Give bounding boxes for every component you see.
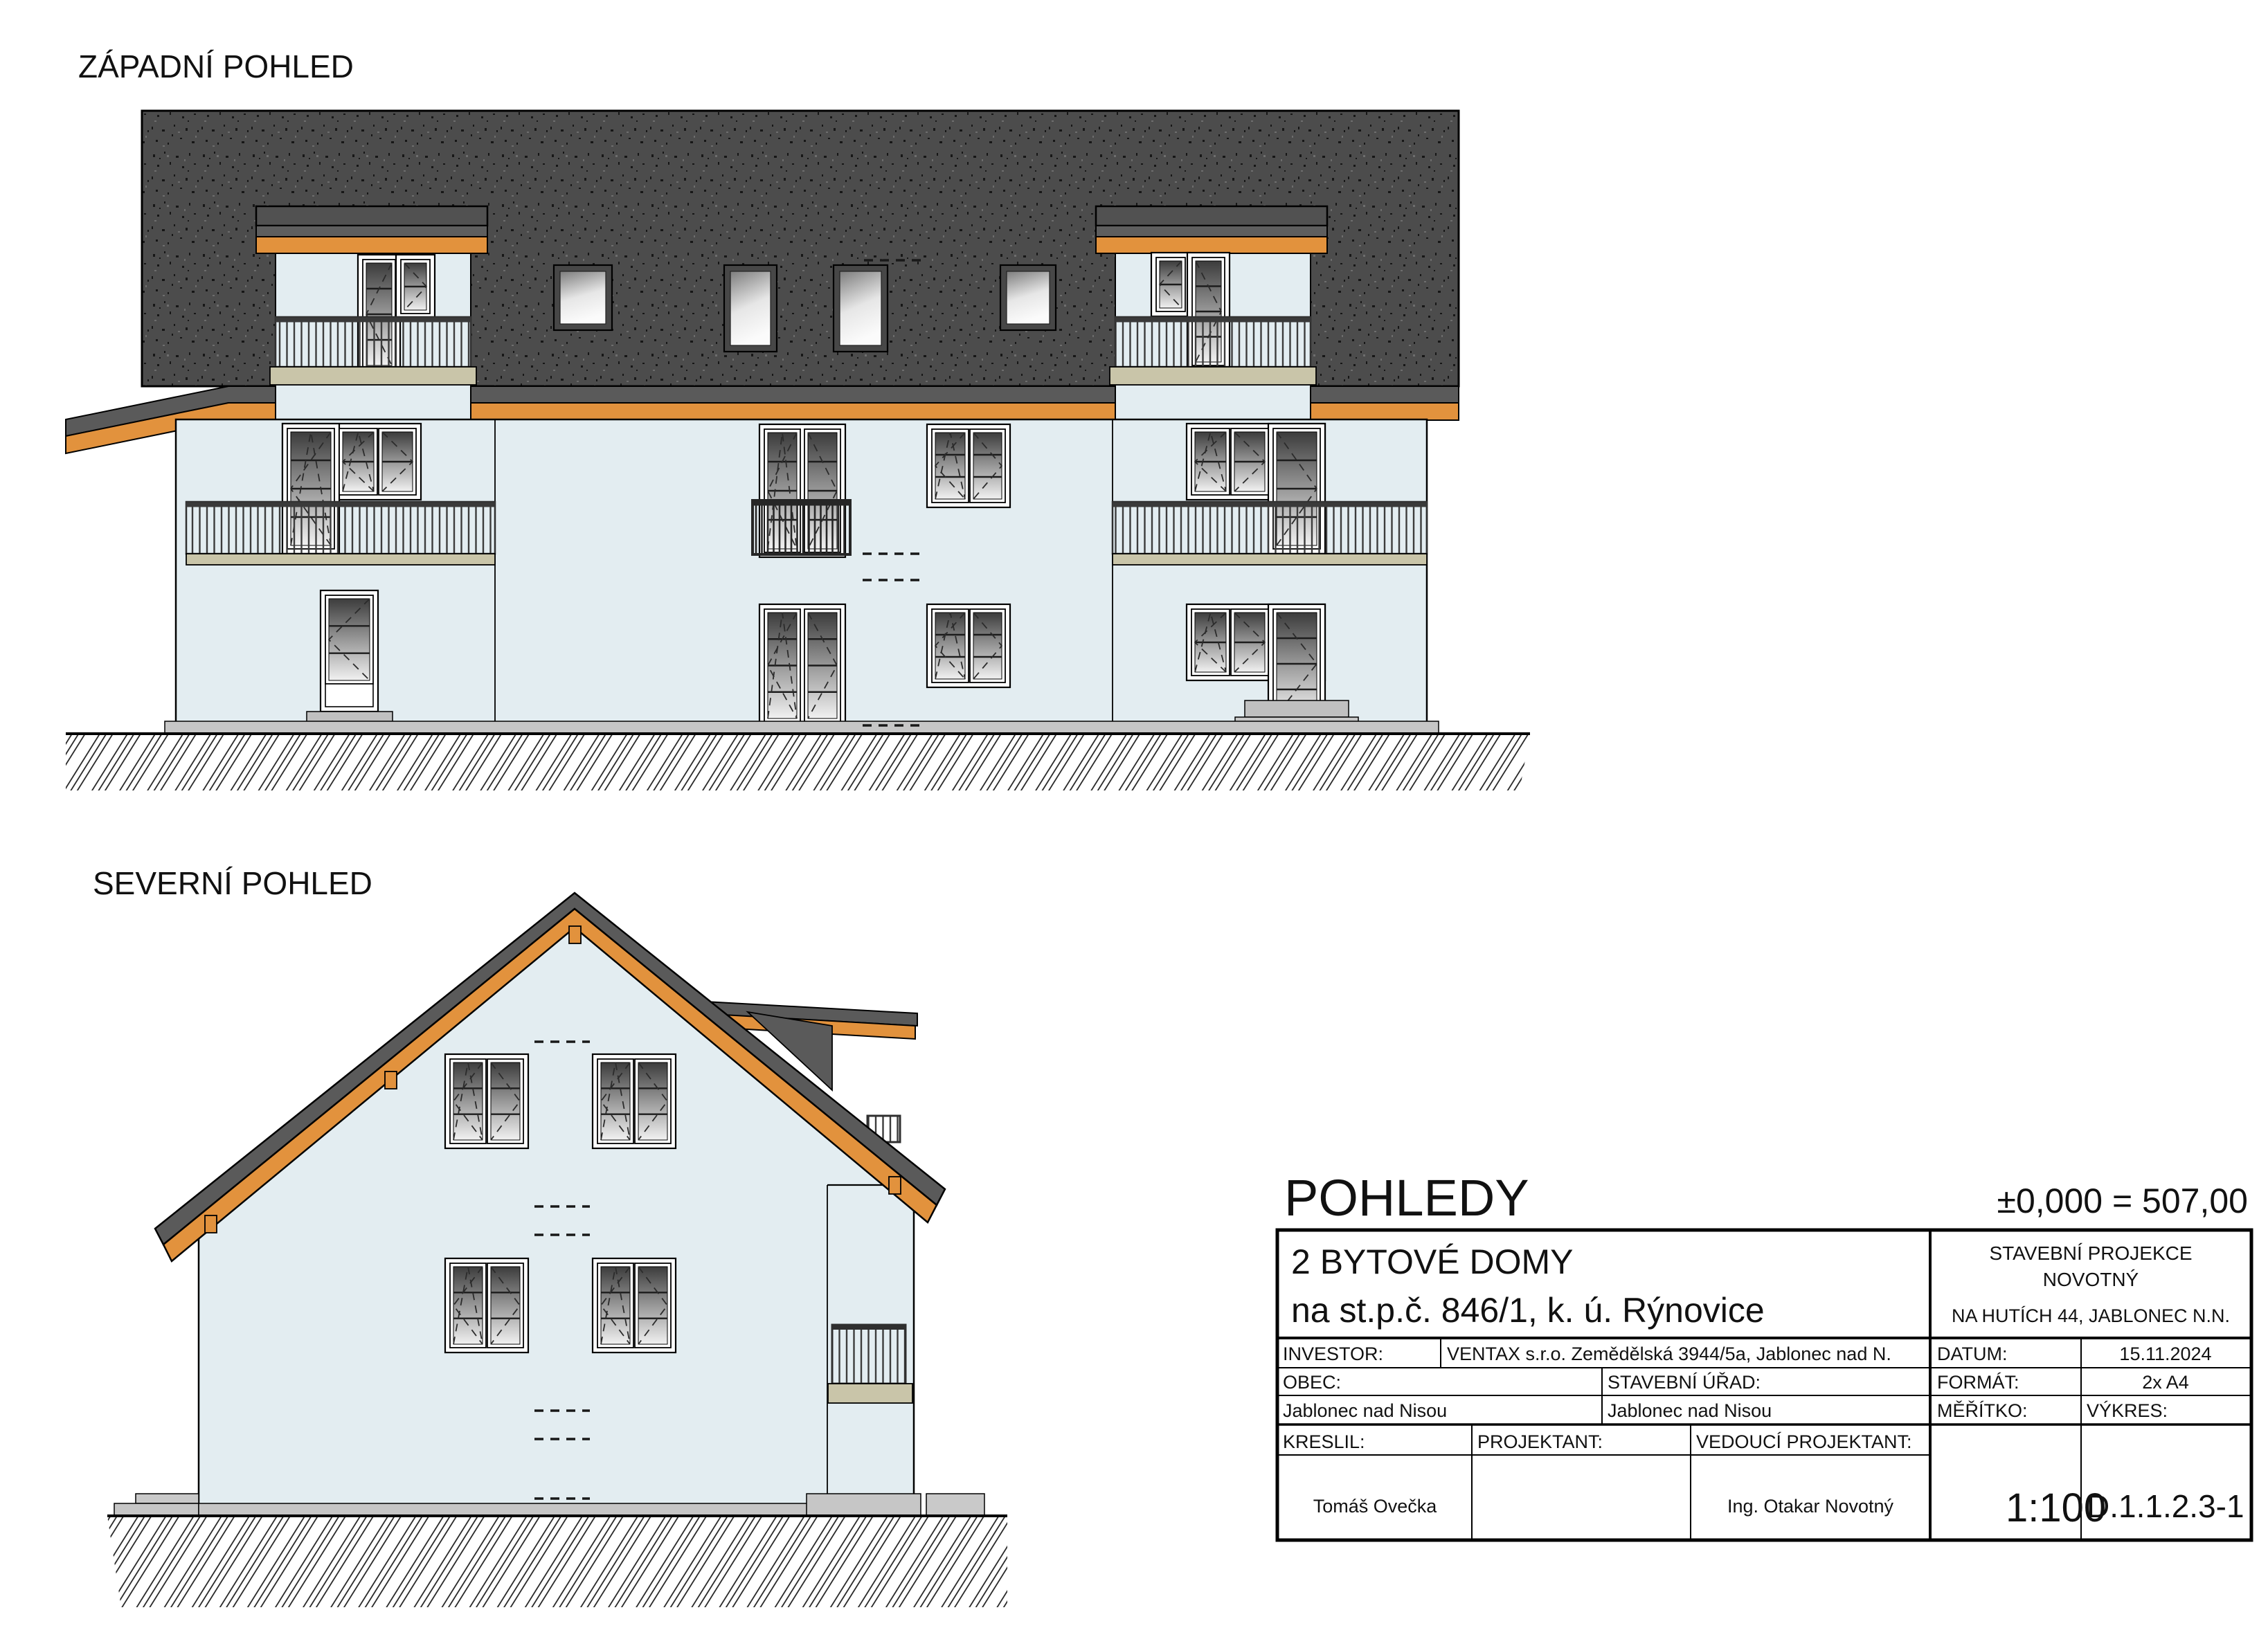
project-title-line2: na st.p.č. 846/1, k. ú. Rýnovice — [1291, 1291, 1765, 1330]
glass — [453, 1062, 483, 1140]
railing-bars — [186, 502, 495, 554]
window-leaf — [339, 428, 377, 495]
investor-value: VENTAX s.r.o. Zemědělská 3944/5a, Jablon… — [1447, 1344, 1891, 1364]
glass — [453, 1267, 483, 1344]
window-leaf — [970, 429, 1005, 503]
projektant-label: PROJEKTANT: — [1477, 1431, 1603, 1452]
balcony — [186, 502, 495, 565]
window-leaf — [635, 1263, 671, 1348]
window-leaf — [932, 429, 969, 503]
window-leaf — [1191, 428, 1230, 495]
vykres-value: D.1.1.2.3-1 — [2087, 1488, 2244, 1524]
window-leaf — [635, 1059, 671, 1143]
project-title-line1: 2 BYTOVÉ DOMY — [1291, 1242, 1574, 1281]
window-leaf — [597, 1059, 633, 1143]
north-ground — [107, 1516, 1007, 1607]
railing-bars — [1113, 502, 1427, 554]
meritko-label: MĚŘÍTKO: — [1937, 1400, 2028, 1421]
window-leaf — [764, 609, 800, 722]
window-leaf — [970, 609, 1005, 682]
north-bay-balcony — [828, 1325, 912, 1403]
company-line2: NOVOTNÝ — [2043, 1269, 2139, 1290]
skylight-glass — [840, 271, 881, 345]
north-elevation-label: SEVERNÍ POHLED — [93, 865, 372, 901]
company-line3: NA HUTÍCH 44, JABLONEC N.N. — [1952, 1305, 2230, 1326]
glass — [973, 613, 1002, 679]
balcony — [1110, 317, 1316, 385]
balcony-slab — [186, 554, 495, 565]
window-leaf — [450, 1263, 486, 1348]
window-leaf — [1156, 257, 1185, 311]
vedouci-label: VEDOUCÍ PROJEKTANT: — [1696, 1431, 1912, 1452]
glass — [601, 1062, 630, 1140]
vedouci-value: Ing. Otakar Novotný — [1727, 1496, 1894, 1517]
window-leaf — [401, 260, 430, 314]
door-panel — [325, 684, 373, 707]
urad-label: STAVEBNÍ ÚŘAD: — [1608, 1371, 1761, 1393]
balcony-slab — [1110, 367, 1316, 385]
balcony-slab — [270, 367, 476, 385]
kreslil-value: Tomáš Ovečka — [1313, 1496, 1438, 1517]
balcony-slab — [828, 1384, 912, 1403]
window-leaf — [450, 1059, 486, 1143]
glass — [491, 1267, 520, 1344]
balcony — [270, 317, 476, 385]
sheet-title: POHLEDY — [1284, 1169, 1529, 1227]
railing-bars — [276, 317, 471, 367]
railing-bars — [1115, 317, 1311, 367]
skylight-glass — [560, 271, 606, 324]
window-leaf — [597, 1263, 633, 1348]
west-elevation-label: ZÁPADNÍ POHLED — [78, 48, 354, 84]
skylight-glass — [730, 271, 771, 345]
window-leaf — [1231, 609, 1268, 676]
format-value: 2x A4 — [2142, 1372, 2189, 1393]
company-line1: STAVEBNÍ PROJEKCE — [1989, 1242, 2192, 1264]
railing-bars — [753, 500, 850, 554]
vykres-label: VÝKRES: — [2087, 1400, 2168, 1421]
window-leaf — [932, 609, 969, 682]
title-block: POHLEDY ±0,000 = 507,00 2 BYTOVÉ DOMY na… — [1277, 1169, 2251, 1540]
glass — [491, 1062, 520, 1140]
glass — [973, 433, 1002, 499]
glass — [329, 599, 370, 680]
juliet-railing — [753, 500, 850, 554]
urad-value: Jablonec nad Nisou — [1608, 1400, 1772, 1421]
west-ground — [66, 734, 1530, 790]
balcony-slab — [1113, 554, 1427, 565]
balcony — [1113, 502, 1427, 565]
window-leaf — [804, 609, 840, 722]
level-datum-note: ±0,000 = 507,00 — [1997, 1182, 2248, 1220]
skylight-window — [834, 265, 888, 352]
north-wall — [199, 901, 914, 1516]
drawing-sheet: ZÁPADNÍ POHLED — [0, 0, 2268, 1628]
datum-value: 15.11.2024 — [2119, 1344, 2211, 1364]
obec-value: Jablonec nad Nisou — [1283, 1400, 1447, 1421]
glass — [638, 1267, 667, 1344]
obec-label: OBEC: — [1283, 1372, 1341, 1393]
datum-label: DATUM: — [1937, 1344, 2008, 1364]
window-leaf — [1231, 428, 1268, 495]
investor-label: INVESTOR: — [1283, 1344, 1383, 1364]
window-leaf — [487, 1059, 523, 1143]
window-leaf — [379, 428, 416, 495]
skylight-window — [1000, 265, 1056, 330]
skylight-glass — [1007, 271, 1050, 324]
skylight-window — [724, 265, 777, 352]
skylight-window — [554, 265, 612, 330]
window-leaf — [487, 1263, 523, 1348]
north-elevation: SEVERNÍ POHLED — [93, 865, 1007, 1607]
glass — [638, 1062, 667, 1140]
elevations-drawing: ZÁPADNÍ POHLED — [0, 0, 2268, 1628]
glass — [935, 433, 965, 499]
window-leaf — [325, 595, 373, 684]
format-label: FORMÁT: — [1937, 1372, 2019, 1393]
west-elevation: ZÁPADNÍ POHLED — [66, 48, 1530, 790]
glass — [601, 1267, 630, 1344]
window-leaf — [1191, 609, 1230, 676]
glass — [935, 613, 965, 679]
kreslil-label: KRESLIL: — [1283, 1431, 1365, 1452]
